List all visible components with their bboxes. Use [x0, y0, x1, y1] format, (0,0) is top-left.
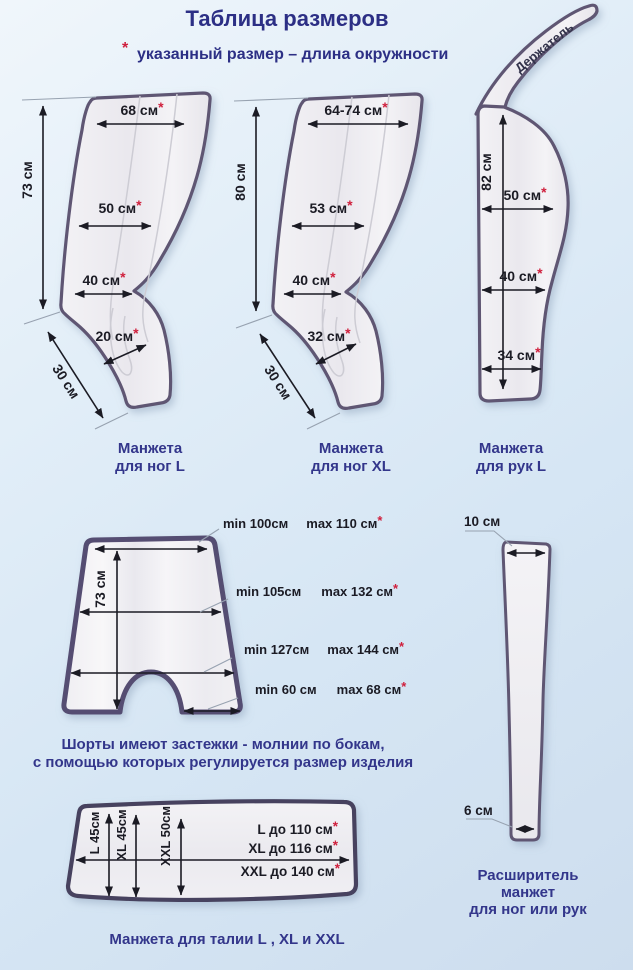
extender-caption-3: для ног или рук — [469, 901, 587, 918]
dim-height-label: 73 см — [19, 161, 35, 199]
hip-range-label: min 105смmax 132 см* — [236, 581, 399, 599]
dim-height-label: 80 см — [232, 163, 248, 201]
bottom-range-label: min 127смmax 144 см* — [244, 639, 405, 657]
waist-range-label: min 100смmax 110 см* — [223, 513, 383, 531]
callout-line — [466, 819, 512, 827]
dim-mid-label: 50 см* — [98, 197, 142, 216]
shorts-shape — [64, 538, 240, 712]
dim-lower-label: 40 см* — [82, 269, 126, 288]
extender-shape — [503, 542, 550, 840]
waist-cuff-caption: Манжета для талии L , XL и XXL — [109, 931, 344, 948]
note-text: указанный размер – длина окружности — [137, 46, 448, 63]
holder-label: Держатель — [512, 19, 577, 75]
dim-foot-label: 30 см — [261, 362, 295, 402]
shorts-note-1: Шорты имеют застежки - молнии по бокам, — [61, 736, 384, 753]
dim-height-label: 82 см — [478, 153, 494, 191]
header: Таблица размеров * указанный размер – дл… — [122, 6, 448, 63]
witness-line — [234, 98, 308, 101]
extender: 10 см 6 см Расширитель манжет для ног ил… — [464, 514, 587, 918]
witness-line — [95, 413, 128, 429]
l-girth-label: L до 110 см* — [257, 819, 338, 837]
top-width-label: 10 см — [464, 514, 500, 529]
xl-girth-label: XL до 116 см* — [248, 838, 338, 856]
xl-height-label: XL 45см — [114, 809, 129, 860]
size-chart: Таблица размеров * указанный размер – дл… — [0, 0, 633, 970]
witness-line — [236, 315, 272, 328]
leg-cuff-xl-caption-2: для ног XL — [311, 458, 391, 475]
size-chart-svg: Таблица размеров * указанный размер – дл… — [0, 0, 633, 970]
dim-ankle-label: 20 см* — [95, 325, 139, 344]
shorts: 73 см min 100смmax 110 см* min 105смmax … — [33, 513, 413, 771]
dim-mid-label: 40 см* — [499, 265, 543, 284]
dim-top-label: 50 см* — [503, 184, 547, 203]
arm-cuff-caption-1: Манжета — [479, 440, 544, 457]
witness-line — [307, 413, 340, 429]
note-asterisk: * — [122, 40, 129, 57]
arm-cuff: Держатель 82 см 50 см* 40 см* 34 см* Ман… — [476, 5, 597, 475]
leg-range-label: min 60 смmax 68 см* — [255, 679, 407, 697]
leg-cuff-l-shape — [61, 93, 210, 407]
extender-caption-2: манжет — [501, 884, 555, 901]
dim-ankle-label: 32 см* — [307, 325, 351, 344]
witness-line — [24, 312, 60, 324]
dim-mid-label: 53 см* — [309, 197, 353, 216]
dim-bottom-label: 34 см* — [497, 344, 541, 363]
arm-cuff-caption-2: для рук L — [476, 458, 546, 475]
leg-cuff-xl-caption-1: Манжета — [319, 440, 384, 457]
dim-top-label: 64-74 см* — [324, 99, 388, 118]
bottom-width-label: 6 см — [464, 803, 493, 818]
dim-top-label: 68 см* — [120, 99, 164, 118]
shorts-note-2: с помощью которых регулируется размер из… — [33, 754, 413, 771]
waist-cuff: L 45см XL 45см XXL 50см L до 110 см* XL … — [68, 801, 356, 948]
l-height-label: L 45см — [87, 812, 102, 855]
leg-cuff-l: 73 см 68 см* 50 см* 40 см* 20 см* 30 см … — [19, 93, 210, 475]
xxl-girth-label: XXL до 140 см* — [241, 861, 341, 879]
page-title: Таблица размеров — [185, 6, 388, 31]
dim-foot-label: 30 см — [49, 361, 83, 401]
dim-lower-label: 40 см* — [292, 269, 336, 288]
witness-line — [22, 97, 96, 100]
extender-caption-1: Расширитель — [477, 867, 578, 884]
dim-height-label: 73 см — [92, 570, 108, 608]
leg-cuff-xl-shape — [273, 94, 422, 408]
leg-cuff-xl: 80 см 64-74 см* 53 см* 40 см* 32 см* 30 … — [232, 94, 422, 475]
xxl-height-label: XXL 50см — [158, 806, 173, 866]
leg-cuff-l-caption-1: Манжета — [118, 440, 183, 457]
leg-cuff-l-caption-2: для ног L — [115, 458, 185, 475]
